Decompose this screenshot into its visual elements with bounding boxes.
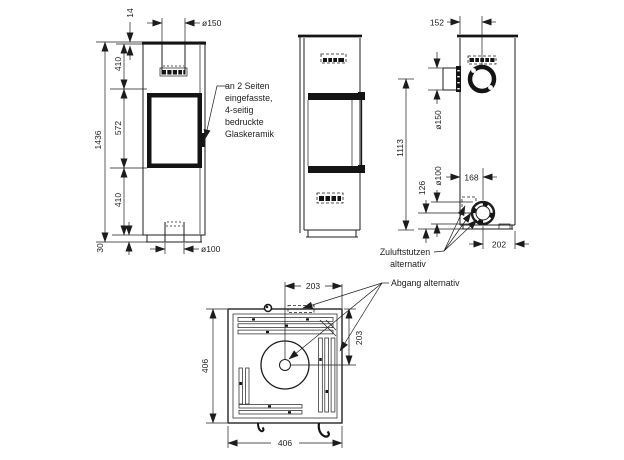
- top-flue-center-circle: [280, 360, 291, 371]
- top-view: 406 406 203 203 Abgang a: [200, 278, 460, 448]
- dim-depth: 406: [200, 309, 227, 423]
- top-front-hinge: [258, 423, 263, 431]
- front-plinth: [146, 235, 202, 242]
- dim-top-inset: 14: [116, 8, 143, 60]
- side-door: [308, 92, 365, 173]
- dim-label-top-inset: 14: [125, 8, 135, 18]
- top-knob: [265, 305, 272, 312]
- dim-label-air-inlet-offset-x: 168: [464, 173, 478, 183]
- dim-label-depth: 406: [200, 359, 210, 373]
- rear-flue-outlet: [470, 67, 494, 91]
- front-view: 1436 14 410 572 410 30: [93, 8, 274, 255]
- front-flue-stub-bottom: [165, 222, 184, 242]
- dim-label-window: 572: [113, 121, 123, 135]
- glass-note-line4: bedruckte: [225, 117, 264, 127]
- dim-label-flue-top: ø150: [202, 18, 222, 28]
- dim-flue-offset-x: 152: [430, 16, 496, 34]
- glass-note-line5: Glaskeramik: [225, 129, 274, 139]
- dim-label-lower: 410: [113, 193, 123, 207]
- glass-note-line3: 4-seitig: [225, 105, 253, 115]
- dim-label-total-height: 1436: [93, 130, 103, 149]
- dim-segments: 410 572 410: [110, 44, 147, 235]
- dim-flue-center-x: 203: [285, 281, 342, 308]
- side-view: [298, 36, 365, 237]
- drawing-canvas: 1436 14 410 572 410 30: [0, 0, 624, 460]
- front-glass-ceramic-window: [147, 93, 205, 168]
- front-door-handle: [200, 133, 205, 147]
- top-left-grille-slats: [239, 368, 302, 414]
- zuluft-label-line2: alternativ: [390, 259, 426, 269]
- side-plinth: [306, 230, 358, 237]
- abgang-label: Abgang alternativ: [391, 278, 460, 288]
- side-door-handle-top: [358, 92, 365, 100]
- zuluft-label-line1: Zuluftstutzen: [380, 247, 430, 257]
- technical-drawing-stove: 1436 14 410 572 410 30: [0, 0, 624, 460]
- dim-label-width: 406: [278, 438, 292, 448]
- glass-note-line2: eingefasste,: [225, 93, 272, 103]
- zuluft-annotation: Zuluftstutzen alternativ: [380, 206, 477, 269]
- dim-air-inlet-offset-right: 202: [469, 226, 529, 250]
- dim-label-air-inlet-dia: ø100: [433, 166, 443, 186]
- dim-flue-side-dia: ø150: [428, 52, 443, 130]
- dim-label-flue-center-x: 203: [306, 281, 320, 291]
- dim-label-air-inlet-offset-right: 202: [492, 240, 506, 250]
- glass-note-line1: an 2 Seiten: [225, 81, 270, 91]
- side-door-handle-bottom: [358, 165, 365, 173]
- dim-label-flue-side-dia: ø150: [433, 110, 443, 130]
- top-rear-grille-slats: [238, 318, 336, 337]
- rear-side-flue-stub: [443, 66, 461, 92]
- dim-air-inlet-offset-x: 168: [446, 168, 497, 200]
- dim-label-flue-center-y: 203: [354, 331, 364, 345]
- dim-label-flue-height: 1113: [395, 139, 405, 157]
- dim-label-plinth: 30: [95, 243, 105, 253]
- glass-note-leader: [205, 86, 226, 139]
- dim-air-inlet-height: 126: [417, 181, 472, 243]
- top-front-handle: [319, 423, 329, 437]
- dim-label-air-inlet-height: 126: [417, 181, 427, 195]
- dim-flue-height: 1113: [395, 79, 414, 230]
- front-flue-collar-top: [160, 44, 187, 76]
- glass-ceramic-annotation: an 2 Seiten eingefasste, 4-seitig bedruc…: [205, 81, 274, 139]
- dim-flue-top: ø150: [147, 18, 222, 42]
- top-right-grille-slats: [319, 338, 335, 412]
- rear-air-inlet: [462, 197, 494, 224]
- dim-label-upper: 410: [113, 57, 123, 71]
- dim-label-flue-offset-x: 152: [430, 18, 444, 28]
- side-flue-collar: [321, 54, 346, 63]
- side-lower-vent: [317, 193, 343, 203]
- dim-label-flue-bottom: ø100: [201, 244, 221, 254]
- rear-view: 152 ø150 1113 126 ø100: [380, 16, 529, 269]
- dim-flue-bottom: ø100: [150, 243, 221, 254]
